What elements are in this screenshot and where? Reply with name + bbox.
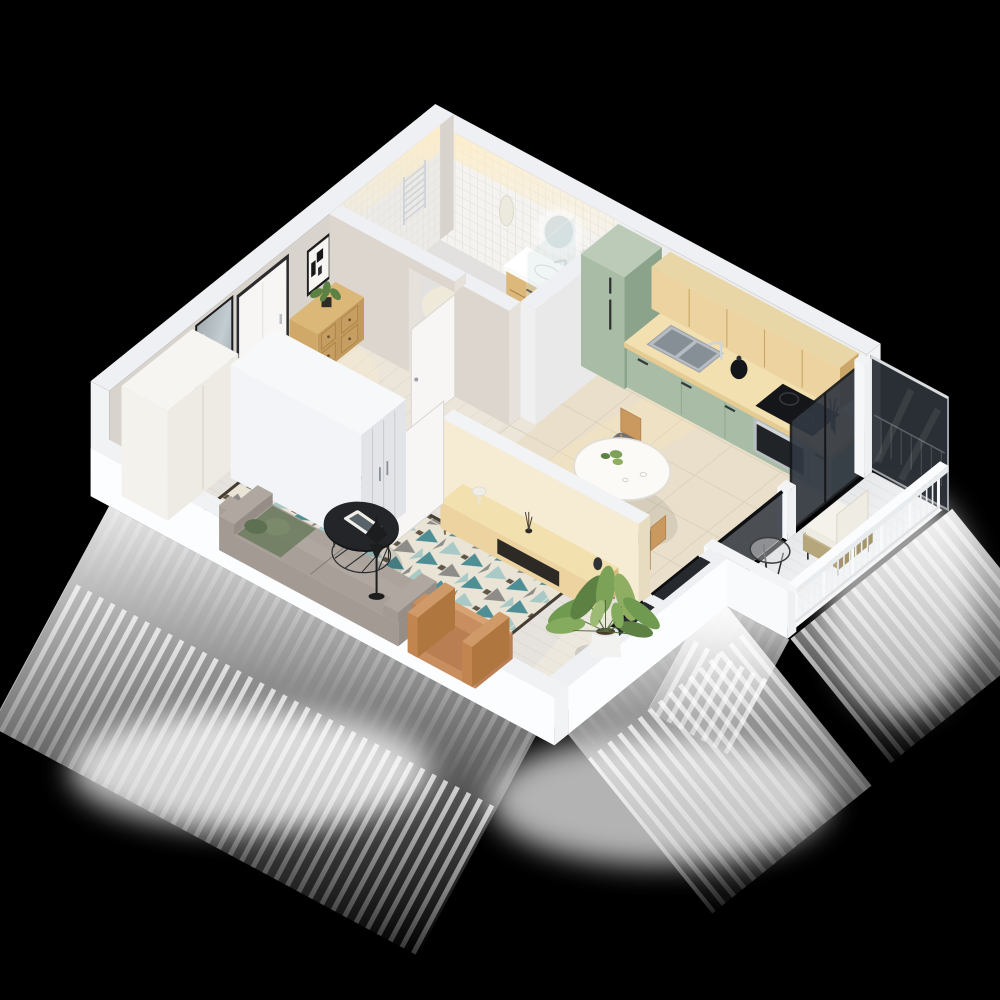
bathrobe [500,196,514,226]
apartment-isometric-render [0,0,1000,1000]
pier [854,354,872,478]
dark-vase [593,557,602,570]
floorplan-render-stage [0,0,1000,1000]
